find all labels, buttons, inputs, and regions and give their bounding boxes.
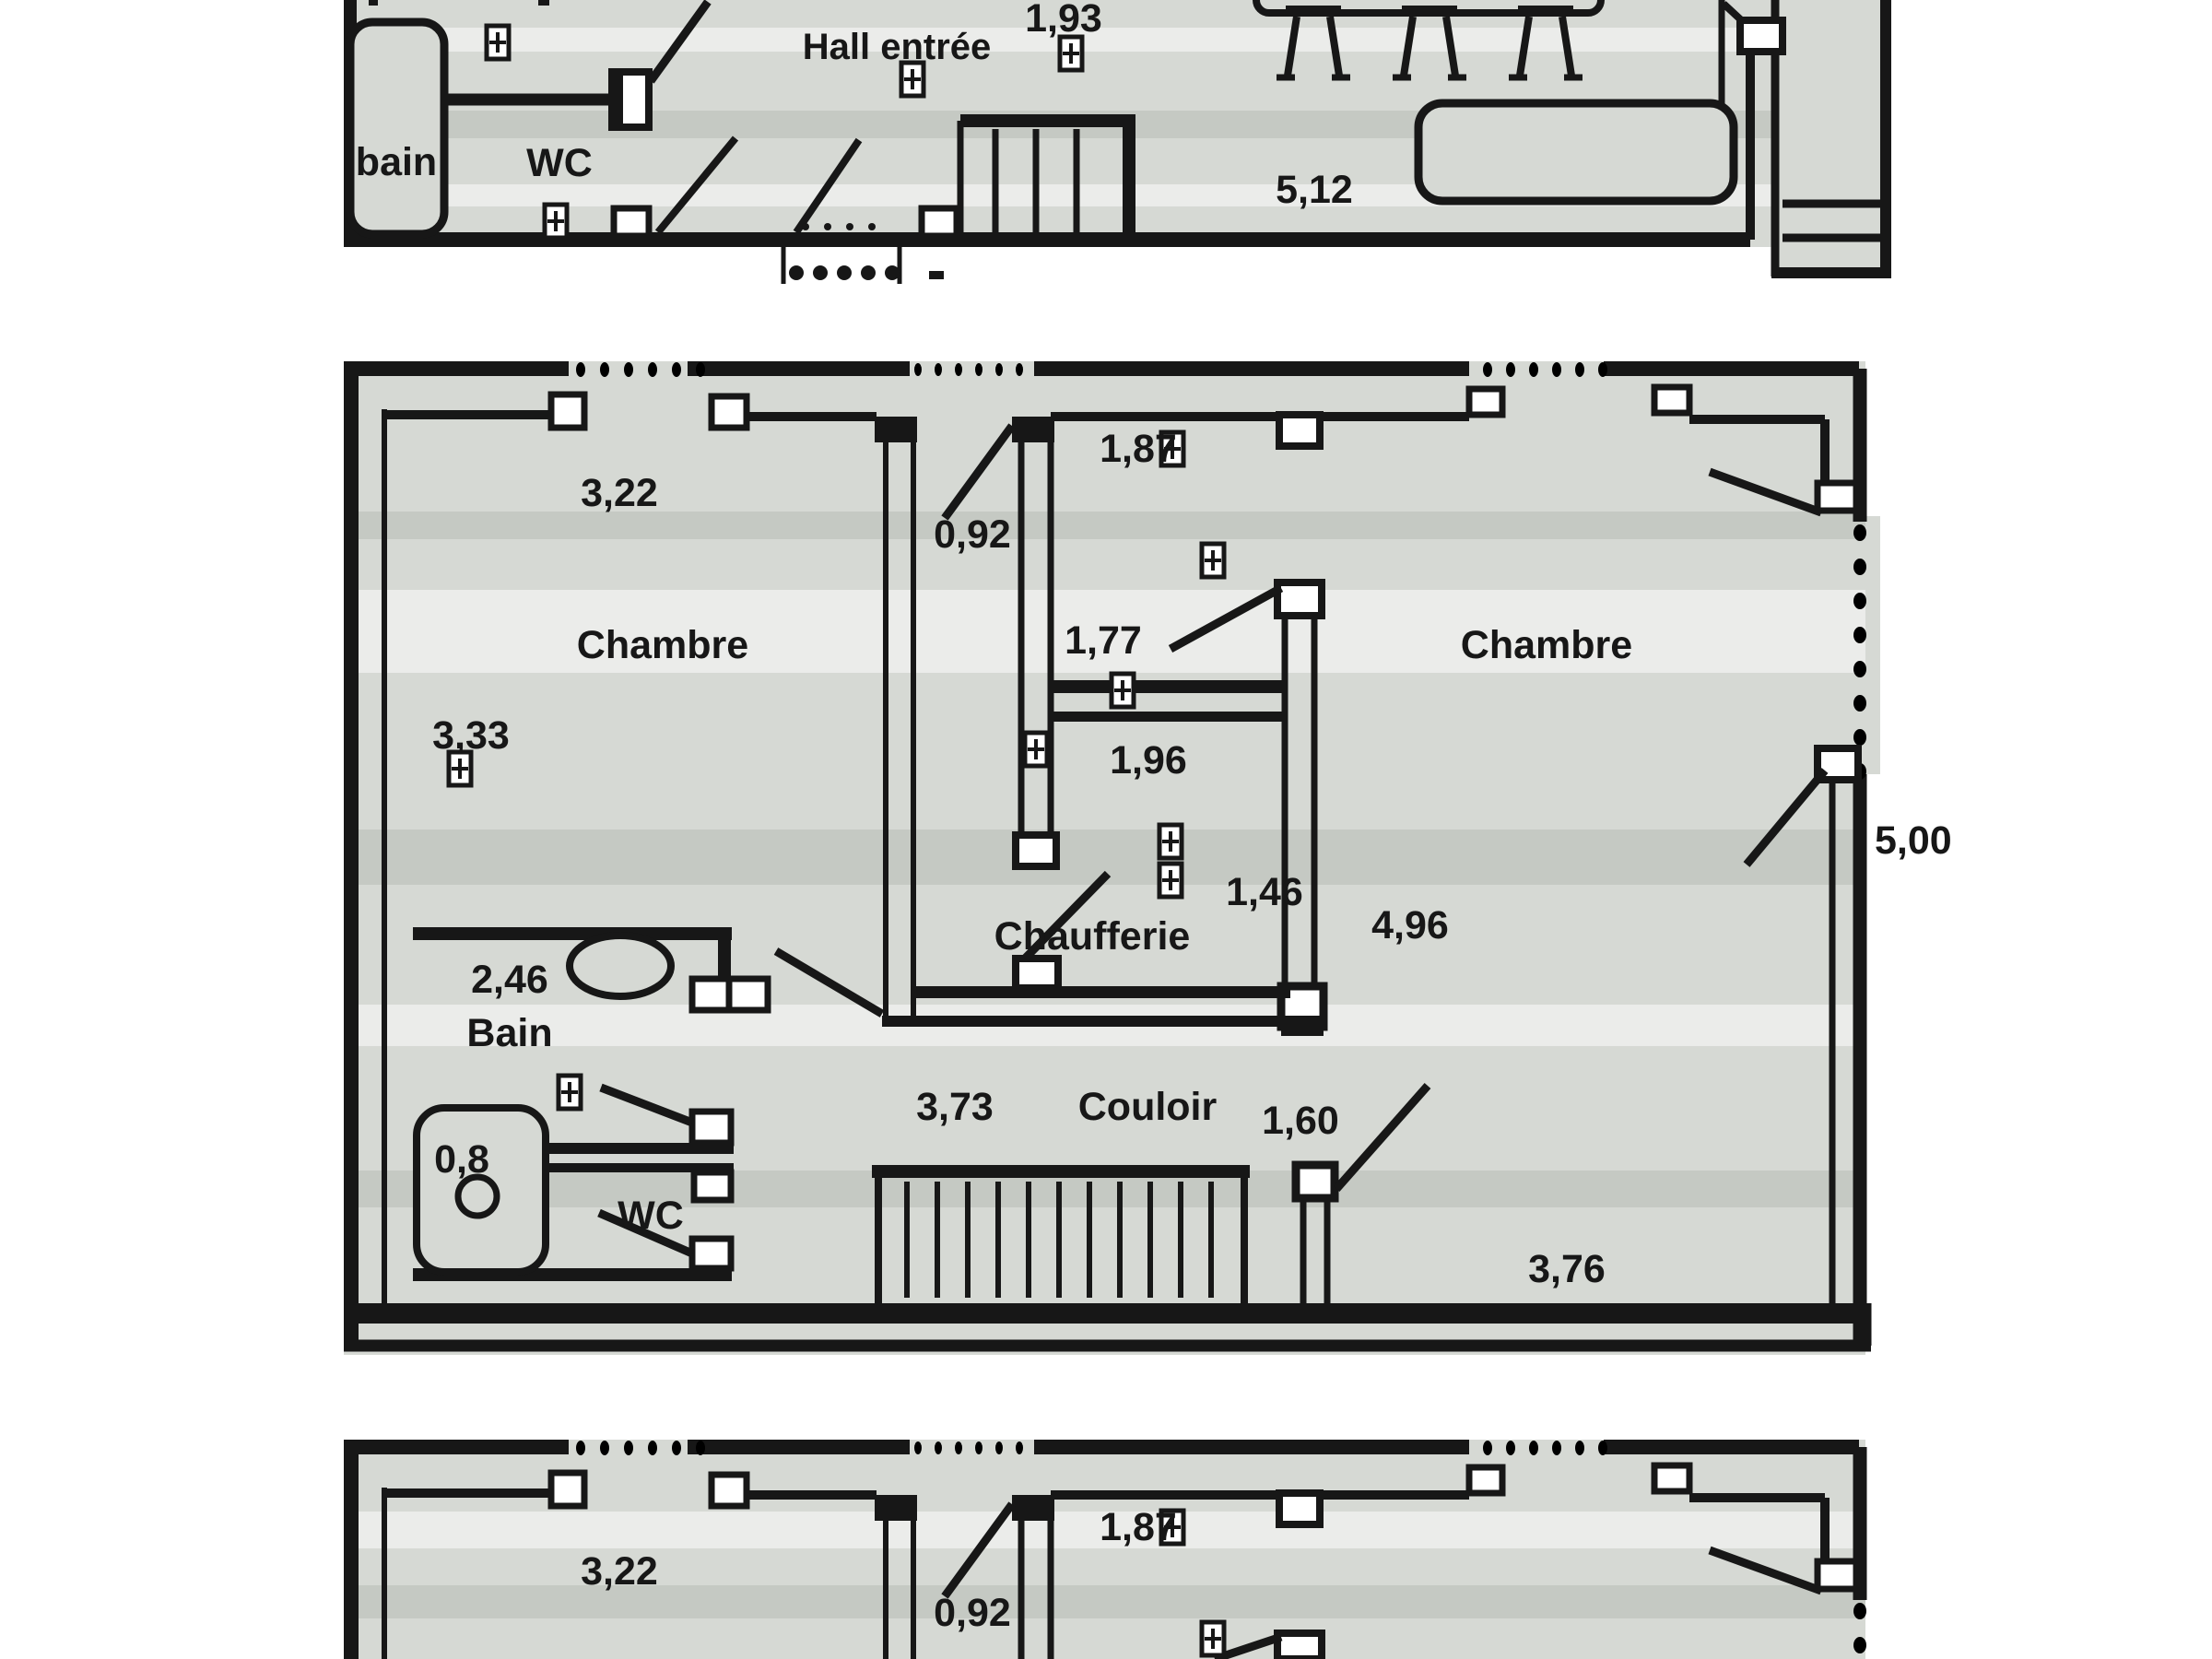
outlet-marker-icon bbox=[1159, 864, 1182, 897]
dim-0-8: 0,8 bbox=[434, 1137, 489, 1182]
room-label-chambre-left: Chambre bbox=[577, 623, 748, 667]
room-label-bain: bain bbox=[356, 140, 437, 184]
dim-3-33: 3,33 bbox=[432, 713, 510, 758]
dim-5-00: 5,00 bbox=[1875, 818, 1952, 863]
dim-5-12: 5,12 bbox=[1276, 168, 1353, 212]
drain bbox=[458, 1177, 497, 1216]
floor-plan-svg: bain WC Hall entrée 1,93 5,12 bbox=[0, 0, 2212, 1659]
upper-bain-room bbox=[350, 22, 444, 234]
outlet-marker-icon bbox=[1202, 1622, 1224, 1655]
dim-0-92: 0,92 bbox=[934, 1591, 1011, 1635]
scan-streak bbox=[344, 512, 1865, 539]
dim-3-22: 3,22 bbox=[581, 471, 658, 515]
outlet-marker-icon bbox=[1025, 733, 1047, 766]
dim-3-73: 3,73 bbox=[916, 1085, 994, 1129]
outlet-marker-icon bbox=[1159, 825, 1182, 858]
bathtub bbox=[570, 935, 671, 996]
dim-1-87: 1,87 bbox=[1100, 427, 1177, 471]
dim-3-22: 3,22 bbox=[581, 1549, 658, 1594]
dim-1-93: 1,93 bbox=[1025, 0, 1102, 41]
plan-lower: 3,22 0,92 1,87 bbox=[344, 1440, 1866, 1659]
upper-entrance-porch bbox=[783, 247, 944, 284]
room-label-hall-entree: Hall entrée bbox=[803, 27, 992, 67]
room-label-wc: WC bbox=[618, 1194, 684, 1238]
dim-0-92: 0,92 bbox=[934, 512, 1011, 557]
room-label-chambre-right: Chambre bbox=[1461, 623, 1632, 667]
sofa bbox=[1418, 103, 1734, 201]
scanned-floor-plan-page: bain WC Hall entrée 1,93 5,12 bbox=[0, 0, 2212, 1659]
dim-1-96: 1,96 bbox=[1110, 738, 1187, 782]
room-label-bain: Bain bbox=[466, 1011, 552, 1055]
plan-upper: bain WC Hall entrée 1,93 5,12 bbox=[344, 0, 1891, 284]
dim-1-77: 1,77 bbox=[1065, 618, 1142, 663]
room-label-couloir: Couloir bbox=[1078, 1085, 1218, 1129]
scan-streak bbox=[344, 1585, 1865, 1618]
outlet-marker-icon bbox=[1112, 674, 1134, 707]
outlet-marker-icon bbox=[1060, 37, 1082, 70]
plan-main: 3,22 0,92 1,87 Chambre Chambre 1,77 3,33… bbox=[344, 361, 1952, 1355]
dim-4-96: 4,96 bbox=[1371, 903, 1449, 947]
outlet-marker-icon bbox=[1202, 544, 1224, 577]
dim-3-76: 3,76 bbox=[1528, 1247, 1606, 1291]
upper-door-jamb bbox=[612, 72, 649, 127]
room-label-chaufferie: Chaufferie bbox=[994, 914, 1191, 959]
dim-1-46: 1,46 bbox=[1226, 870, 1303, 914]
outlet-marker-icon bbox=[901, 63, 924, 96]
outlet-marker-icon bbox=[545, 205, 567, 238]
room-label-wc: WC bbox=[526, 141, 593, 185]
dim-1-87: 1,87 bbox=[1100, 1505, 1177, 1549]
dim-1-60: 1,60 bbox=[1262, 1099, 1339, 1143]
outlet-marker-icon bbox=[487, 26, 509, 59]
dim-2-46: 2,46 bbox=[471, 958, 548, 1002]
outlet-marker-icon bbox=[559, 1076, 581, 1109]
